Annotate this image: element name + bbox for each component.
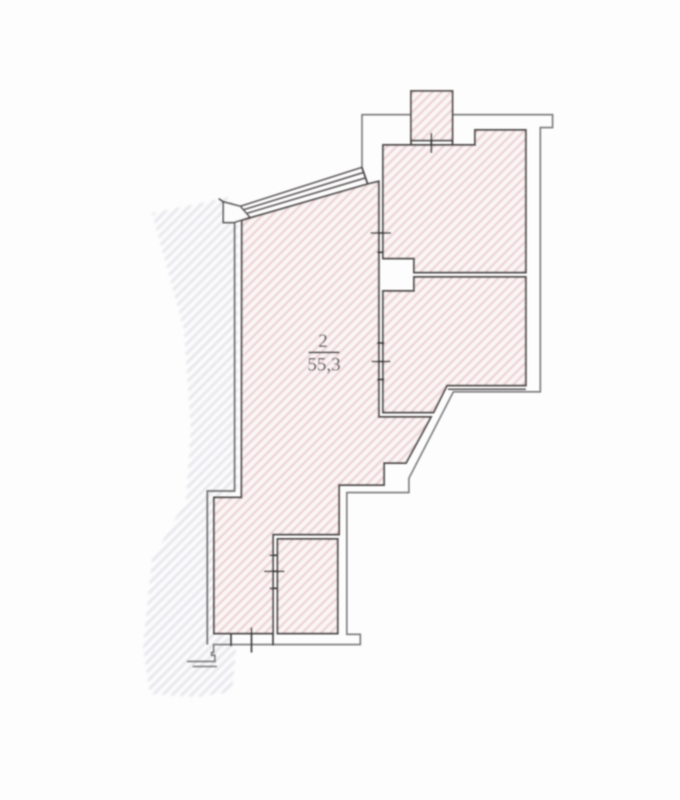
svg-text:55,3: 55,3 xyxy=(307,355,340,376)
svg-text:2: 2 xyxy=(318,331,328,352)
